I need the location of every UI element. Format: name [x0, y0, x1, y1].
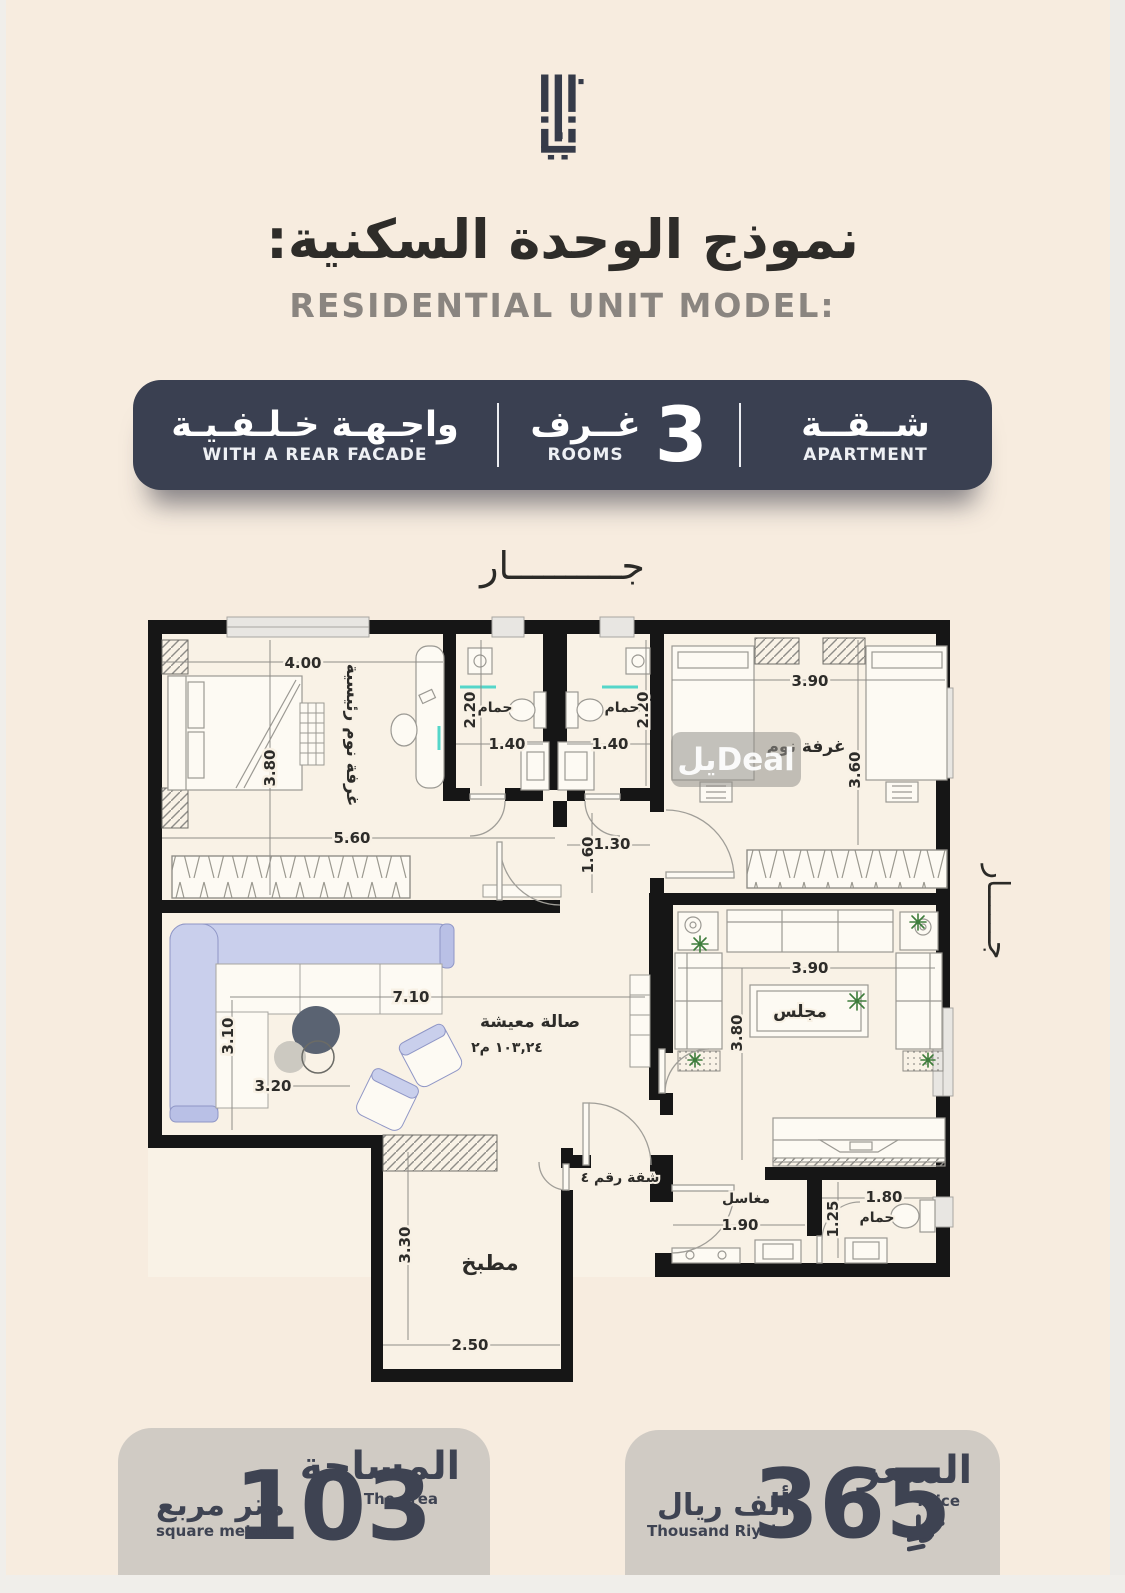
rooms-arabic: غــرف [530, 405, 640, 445]
svg-text:3.30: 3.30 [396, 1226, 414, 1263]
banner-apartment: شــقــة APARTMENT [741, 380, 990, 490]
area-unit-arabic: متر مربع [156, 1488, 285, 1523]
banner-rooms: غــرف ROOMS 3 [497, 403, 741, 467]
svg-text:حمام: حمام [860, 1210, 895, 1226]
svg-text:3.90: 3.90 [791, 959, 828, 977]
svg-text:1.40: 1.40 [488, 735, 525, 753]
svg-text:صالة معيشة: صالة معيشة [480, 1012, 580, 1032]
svg-text:1.80: 1.80 [865, 1188, 902, 1206]
svg-text:3.10: 3.10 [219, 1017, 237, 1054]
svg-text:4.00: 4.00 [284, 654, 321, 672]
photo-edge-bottom [0, 1575, 1125, 1593]
svg-text:غرفة نوم رئيسية: غرفة نوم رئيسية [342, 664, 362, 807]
svg-text:2.50: 2.50 [451, 1336, 488, 1354]
svg-text:1.30: 1.30 [593, 835, 630, 853]
svg-text:١٠٣,٢٤ م٢: ١٠٣,٢٤ م٢ [471, 1040, 543, 1056]
svg-text:مجلس: مجلس [773, 1002, 827, 1022]
spec-banner: واجـهـة خـلـفـيـة WITH A REAR FACADE غــ… [133, 380, 992, 490]
svg-text:3.90: 3.90 [791, 672, 828, 690]
svg-text:مطبخ: مطبخ [461, 1251, 518, 1275]
facade-arabic: واجـهـة خـلـفـيـة [171, 405, 459, 445]
svg-text:1.60: 1.60 [579, 836, 597, 873]
svg-text:3.60: 3.60 [846, 751, 864, 788]
page-title-english: RESIDENTIAL UNIT MODEL: [0, 286, 1125, 325]
area-badge: المساحة The area 103 متر مربع square met… [118, 1428, 490, 1578]
svg-text:5.60: 5.60 [333, 829, 370, 847]
apartment-english: APARTMENT [803, 445, 928, 465]
svg-text:حمام: حمام [478, 700, 513, 716]
floor-plan: 4.00 3.80 5.60 2.20 1.40 2.20 1.40 1.30 … [125, 590, 1025, 1390]
apartment-arabic: شــقــة [801, 405, 930, 445]
area-unit-english: square meter [156, 1522, 270, 1540]
facade-english: WITH A REAR FACADE [203, 445, 428, 465]
svg-text:1.40: 1.40 [591, 735, 628, 753]
rooms-count: 3 [655, 401, 708, 469]
svg-text:7.10: 7.10 [392, 988, 429, 1006]
banner-facade: واجـهـة خـلـفـيـة WITH A REAR FACADE [133, 380, 497, 490]
svg-text:2.20: 2.20 [461, 691, 479, 728]
master-bed [168, 676, 302, 790]
svg-text:1.25: 1.25 [824, 1200, 842, 1237]
hall-cabinet [630, 975, 650, 1067]
watermark: يلDeal [671, 732, 801, 787]
brand-logo-icon [532, 50, 600, 184]
svg-text:1.90: 1.90 [721, 1216, 758, 1234]
svg-text:شقة رقم ٤: شقة رقم ٤ [581, 1170, 660, 1186]
price-unit-english: Thousand Riyals [647, 1522, 785, 1540]
poster: نموذج الوحدة السكنية: RESIDENTIAL UNIT M… [0, 0, 1125, 1593]
rooms-english: ROOMS [547, 445, 623, 465]
neighbor-label-top: جــــــــــار [0, 544, 1125, 588]
neighbor-label-right: جــــــار [980, 863, 1015, 960]
page-title-arabic: نموذج الوحدة السكنية: [0, 208, 1125, 271]
svg-text:3.80: 3.80 [261, 749, 279, 786]
svg-text:3.20: 3.20 [254, 1077, 291, 1095]
price-badge: السعر Price 365 ألف ريال Thousand Riyals [625, 1430, 1000, 1578]
svg-text:حمام: حمام [605, 700, 640, 716]
svg-text:مغاسل: مغاسل [722, 1191, 770, 1207]
master-dresser [300, 703, 324, 765]
photo-edge-right [1110, 0, 1125, 1593]
price-unit-arabic: ألف ريال [657, 1488, 791, 1523]
tv-unit [773, 1118, 945, 1166]
svg-text:3.80: 3.80 [728, 1014, 746, 1051]
photo-edge-left [0, 0, 6, 1593]
